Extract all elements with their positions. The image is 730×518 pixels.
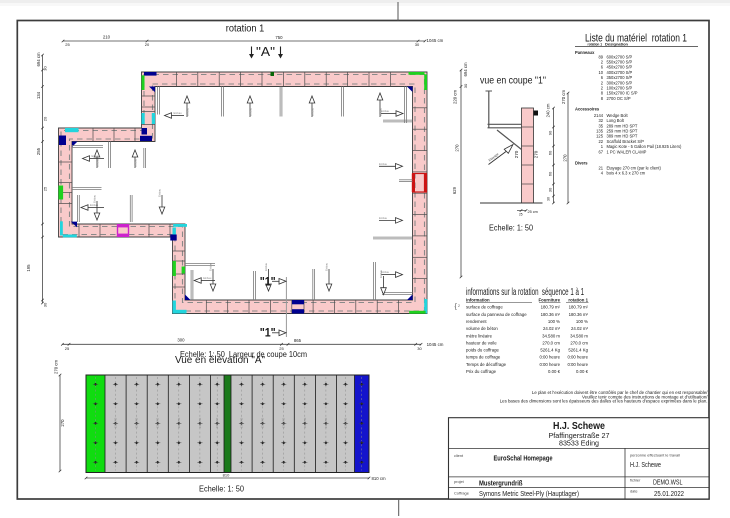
svg-text:270.0 cm: 270.0 cm	[570, 340, 588, 345]
svg-text:Einbau: Einbau	[311, 107, 315, 116]
svg-text:2: 2	[458, 304, 460, 308]
svg-text:270 cm: 270 cm	[561, 90, 566, 105]
svg-text:vue en coupe "1": vue en coupe "1"	[480, 76, 546, 87]
svg-text:90: 90	[548, 130, 553, 135]
svg-text:30: 30	[547, 197, 551, 201]
svg-text:0:00 heure: 0:00 heure	[539, 362, 560, 367]
svg-text:0:00 heure: 0:00 heure	[567, 355, 588, 360]
svg-text:rotation 1: rotation 1	[226, 24, 265, 35]
svg-text:240 cm: 240 cm	[546, 103, 551, 117]
svg-text:83533 Eding: 83533 Eding	[559, 439, 599, 448]
svg-text:mètre linéaire: mètre linéaire	[466, 333, 493, 338]
svg-text:600x2700: 600x2700	[304, 417, 307, 428]
svg-text:Echelle: 1: 50: Echelle: 1: 50	[489, 223, 533, 233]
svg-text:Einbau: Einbau	[379, 162, 388, 166]
svg-text:300: 300	[177, 337, 185, 342]
svg-text:100 %: 100 %	[576, 319, 588, 324]
svg-text:210: 210	[103, 34, 111, 39]
svg-text:Einbau: Einbau	[134, 158, 138, 167]
svg-text:rotation 1: rotation 1	[568, 297, 588, 302]
svg-text:informations sur la rotation: informations sur la rotation séquence 1 …	[466, 287, 584, 298]
svg-text:Einbau: Einbau	[96, 158, 100, 167]
svg-text:694 cm: 694 cm	[463, 62, 468, 77]
svg-text:100 %: 100 %	[548, 319, 560, 324]
svg-text:rotation 1: rotation 1	[588, 41, 603, 46]
svg-text:Prix du coffrage: Prix du coffrage	[466, 369, 497, 374]
svg-text:Symons Metric Steel-Ply (Haupt: Symons Metric Steel-Ply (Hauptlager)	[479, 489, 579, 498]
svg-text:surface du panneau de coffrage: surface du panneau de coffrage	[466, 312, 527, 317]
svg-text:poids du coffrage: poids du coffrage	[466, 348, 499, 353]
svg-text:270: 270	[534, 150, 539, 158]
svg-text:Einbau: Einbau	[158, 188, 162, 197]
svg-text:Einbau: Einbau	[381, 109, 390, 113]
svg-text:0.00 €: 0.00 €	[548, 369, 561, 374]
svg-text:180.79 m²: 180.79 m²	[569, 305, 589, 310]
svg-text:20: 20	[145, 42, 150, 47]
svg-text:Echelle: 1: 50: Echelle: 1: 50	[199, 484, 244, 494]
svg-text:750: 750	[275, 35, 283, 40]
svg-text:bois 4 x 6.3 x 270 cm: bois 4 x 6.3 x 270 cm	[607, 171, 646, 176]
svg-text:865: 865	[294, 338, 302, 343]
svg-text:Einbau: Einbau	[379, 216, 388, 220]
svg-text:180.36 m²: 180.36 m²	[569, 312, 589, 317]
svg-text:34.580 m: 34.580 m	[570, 333, 588, 338]
svg-text:25: 25	[519, 213, 523, 217]
svg-text:25: 25	[43, 186, 48, 191]
svg-text:Fourniture: Fourniture	[539, 297, 561, 302]
svg-text:24.02 m³: 24.02 m³	[543, 326, 561, 331]
svg-text:1045 cm: 1045 cm	[427, 38, 444, 43]
svg-text:30: 30	[417, 346, 422, 351]
svg-text:270: 270	[455, 144, 460, 152]
svg-text:0.00 €: 0.00 €	[576, 369, 589, 374]
svg-text:600x2700: 600x2700	[178, 417, 181, 428]
svg-text:600x2700: 600x2700	[216, 417, 219, 428]
svg-text:rendement: rendement	[466, 319, 487, 324]
svg-text:134: 134	[36, 91, 41, 99]
svg-text:personne effectuant le travail: personne effectuant le travail	[630, 453, 680, 458]
svg-text:600x2700: 600x2700	[199, 417, 202, 428]
svg-text:5261.4 Kg: 5261.4 Kg	[540, 348, 560, 353]
svg-text:Divers: Divers	[575, 160, 588, 165]
svg-text:30: 30	[43, 302, 48, 307]
svg-text:DEMO.WSL: DEMO.WSL	[653, 478, 683, 487]
svg-text:Einbau: Einbau	[264, 262, 268, 271]
svg-text:67: 67	[598, 149, 603, 154]
svg-text:projet: projet	[454, 479, 465, 484]
svg-text:Coffrage: Coffrage	[454, 491, 469, 496]
svg-text:0:00 heure: 0:00 heure	[539, 355, 560, 360]
svg-text:810 cm: 810 cm	[372, 476, 387, 481]
svg-text:"A": "A"	[256, 44, 275, 59]
svg-text:195: 195	[26, 264, 31, 272]
svg-text:600x2700: 600x2700	[345, 417, 348, 428]
svg-text:fichier: fichier	[630, 478, 641, 483]
svg-text:H.J. Schewe: H.J. Schewe	[630, 460, 661, 469]
svg-text:Einbau: Einbau	[379, 269, 383, 278]
svg-text:hauteur de voile: hauteur de voile	[466, 340, 497, 345]
svg-text:30: 30	[415, 42, 420, 47]
svg-text:30: 30	[463, 83, 468, 88]
svg-text:810: 810	[223, 472, 230, 477]
svg-text:Einbau: Einbau	[186, 107, 190, 116]
svg-text:Einbau: Einbau	[209, 262, 213, 271]
svg-text:temps de coffrage: temps de coffrage	[466, 355, 501, 360]
svg-text:600x2700: 600x2700	[136, 417, 139, 428]
svg-text:Einbau: Einbau	[325, 262, 329, 271]
svg-text:270: 270	[60, 419, 65, 427]
svg-text:25: 25	[65, 42, 70, 47]
svg-text:Einbau: Einbau	[174, 111, 183, 115]
svg-text:600x2700: 600x2700	[115, 417, 118, 428]
svg-text:180.36 m²: 180.36 m²	[541, 312, 561, 317]
svg-text:EuroSchal Homepage: EuroSchal Homepage	[494, 454, 553, 463]
svg-text:Les bases des dimensions sont: Les bases des dimensions sont les épaiss…	[500, 399, 708, 404]
svg-text:220 cm: 220 cm	[453, 90, 458, 105]
svg-text:Panneaux: Panneaux	[575, 50, 595, 55]
svg-text:Einbau: Einbau	[203, 276, 212, 280]
svg-text:600x2700: 600x2700	[157, 417, 160, 428]
svg-text:2700 OC S/P: 2700 OC S/P	[607, 96, 631, 101]
svg-text:date: date	[630, 489, 638, 494]
svg-text:volume de béton: volume de béton	[466, 326, 498, 331]
svg-text:60: 60	[548, 171, 553, 176]
svg-text:20: 20	[43, 116, 48, 121]
svg-text:34.580 m: 34.580 m	[542, 333, 560, 338]
svg-text:270: 270	[514, 150, 519, 158]
svg-text:information: information	[466, 297, 490, 302]
svg-text:270: 270	[563, 154, 568, 162]
svg-text:Temps de décoffrage: Temps de décoffrage	[466, 362, 507, 367]
svg-text:180.79 m²: 180.79 m²	[541, 305, 561, 310]
svg-text:30: 30	[548, 187, 553, 192]
svg-text:client: client	[454, 453, 464, 458]
svg-text:60: 60	[548, 150, 553, 155]
svg-text:25: 25	[65, 346, 70, 351]
svg-text:surface de coffrage: surface de coffrage	[466, 305, 503, 310]
svg-text:Mustergrundriß: Mustergrundriß	[479, 478, 523, 487]
svg-text:0:00 heure: 0:00 heure	[567, 362, 588, 367]
svg-text:600x2700: 600x2700	[262, 417, 265, 428]
svg-text:600x2700: 600x2700	[283, 417, 286, 428]
svg-text:600x2700: 600x2700	[241, 417, 244, 428]
svg-text:1045 cm: 1045 cm	[427, 342, 444, 347]
svg-text:Désignation: Désignation	[605, 41, 629, 46]
svg-text:694 cm: 694 cm	[36, 52, 41, 67]
svg-text:30: 30	[43, 66, 48, 71]
svg-text:270.0 cm: 270.0 cm	[542, 340, 560, 345]
svg-text:1 PC WALER CLAMP: 1 PC WALER CLAMP	[607, 149, 647, 154]
svg-text:25 cm: 25 cm	[528, 210, 538, 214]
svg-text:Einbau: Einbau	[92, 154, 101, 158]
svg-text:Einbau: Einbau	[249, 107, 253, 116]
svg-text:5261.4 Kg: 5261.4 Kg	[568, 348, 588, 353]
svg-text:600x2700: 600x2700	[325, 417, 328, 428]
svg-text:24.02 m³: 24.02 m³	[571, 326, 589, 331]
svg-text:25.01.2022: 25.01.2022	[654, 489, 684, 498]
svg-text:255: 255	[36, 147, 41, 155]
svg-text:270 cm: 270 cm	[54, 360, 59, 375]
svg-text:Accessoires: Accessoires	[575, 107, 600, 112]
svg-text:Vue en élévation "A": Vue en élévation "A"	[175, 355, 265, 366]
svg-text:Einbau: Einbau	[93, 194, 97, 203]
svg-text:629: 629	[452, 186, 457, 194]
